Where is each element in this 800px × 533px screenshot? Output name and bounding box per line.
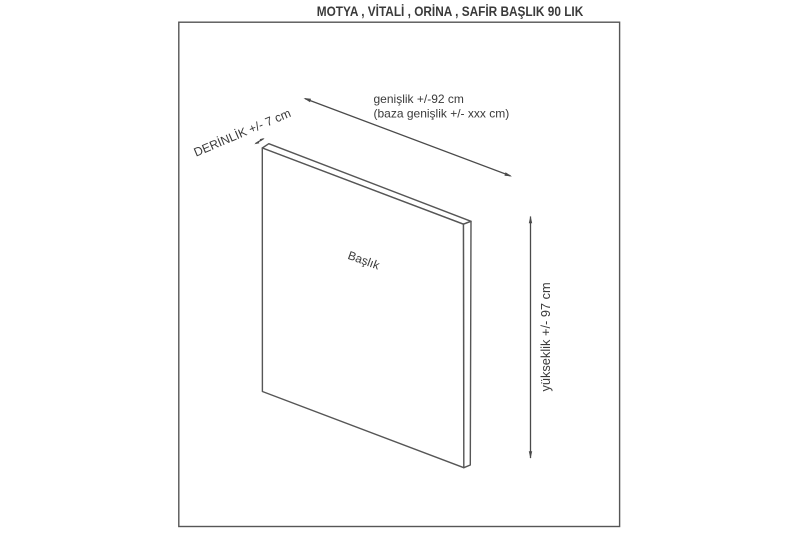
svg-text:(baza genişlik +/- xxx cm): (baza genişlik +/- xxx cm) [374, 106, 510, 120]
svg-text:yükseklik +/- 97 cm: yükseklik +/- 97 cm [538, 282, 553, 391]
svg-text:genişlik +/-92 cm: genişlik +/-92 cm [374, 92, 464, 106]
svg-text:MOTYA , VİTALİ , ORİNA , SAFİR: MOTYA , VİTALİ , ORİNA , SAFİR BAŞLIK 90… [317, 3, 584, 19]
